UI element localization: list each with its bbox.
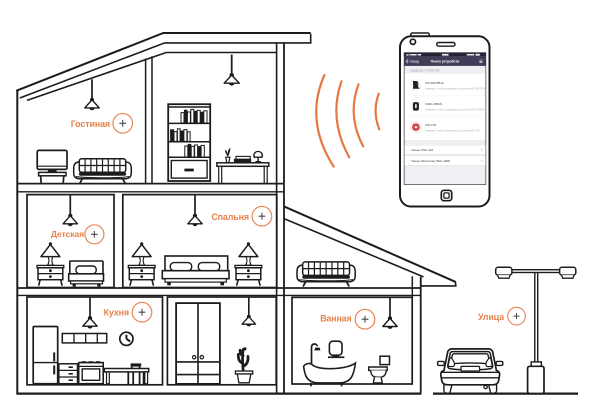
svg-text:Гостиная: Гостиная — [71, 119, 110, 129]
svg-text:RX-M1785-E: RX-M1785-E — [426, 81, 444, 85]
svg-text:Спальня: Спальня — [211, 212, 249, 222]
svg-text:Детская: Детская — [51, 229, 84, 239]
svg-text:Умное SkyCenter 5SC-1005: Умное SkyCenter 5SC-1005 — [411, 159, 450, 163]
svg-text:Нажмите, чтобы подключить устр: Нажмите, чтобы подключить устройство RHF… — [426, 109, 485, 112]
svg-text:Улица: Улица — [478, 312, 504, 322]
svg-text:Умное KSC-115: Умное KSC-115 — [411, 148, 433, 152]
svg-text:RS-715: RS-715 — [426, 123, 437, 127]
svg-text:Назад: Назад — [410, 60, 420, 64]
svg-text:Нажмите, чтобы подключить устр: Нажмите, чтобы подключить устройство RX-… — [426, 88, 486, 91]
svg-text:Нажмите, чтобы подключить устр: Нажмите, чтобы подключить устройство RS-… — [426, 130, 481, 133]
svg-text:Кухня: Кухня — [104, 307, 129, 317]
svg-text:RHF-3352S: RHF-3352S — [426, 102, 443, 106]
svg-text:Ванная: Ванная — [320, 313, 351, 323]
svg-text:НАЙДЕНЫ УСТРОЙСТВА: НАЙДЕНЫ УСТРОЙСТВА — [410, 70, 441, 73]
svg-text:Поиск устройств: Поиск устройств — [431, 60, 460, 64]
